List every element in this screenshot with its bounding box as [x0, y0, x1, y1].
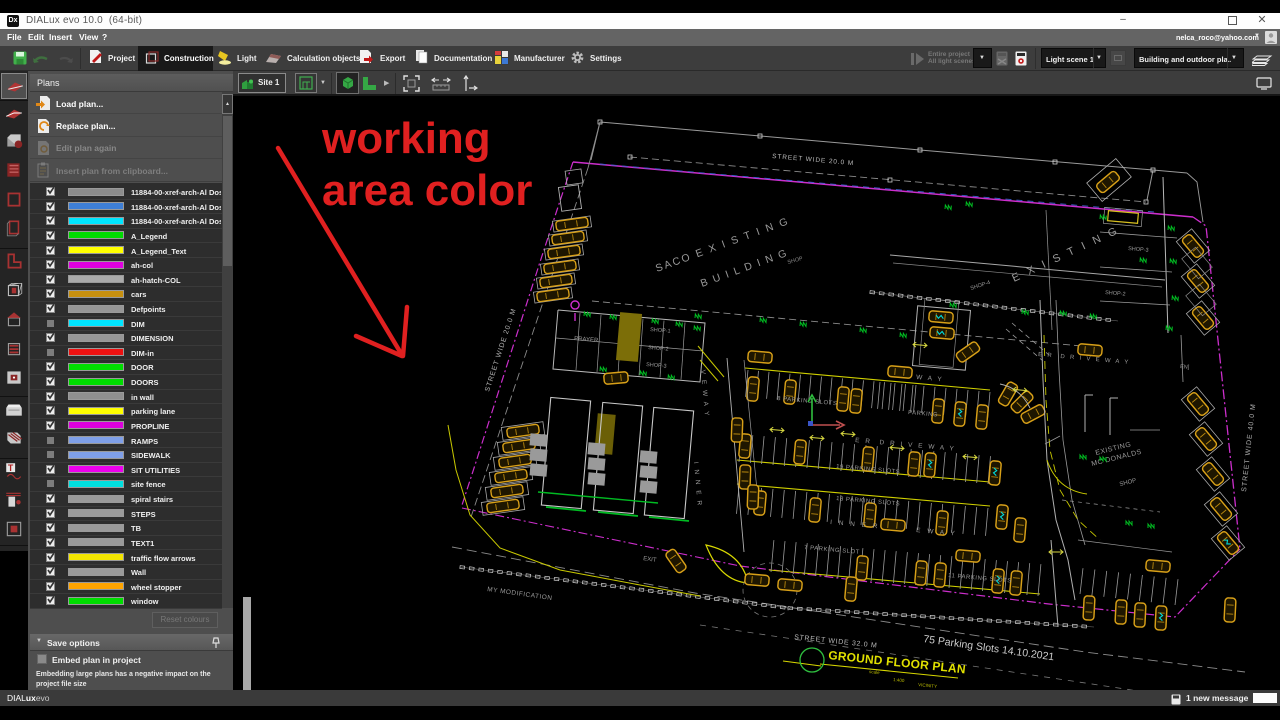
svg-text:SHOP-4: SHOP-4	[970, 280, 991, 292]
svg-text:MY MODIFICATION: MY MODIFICATION	[487, 586, 553, 602]
svg-text:EN]: EN]	[1180, 364, 1190, 371]
svg-text:SACO E X I S T I N G: SACO E X I S T I N G	[654, 215, 791, 275]
svg-text:STREET WIDE 40.0 M: STREET WIDE 40.0 M	[1241, 403, 1257, 492]
svg-text:V E W A Y: V E W A Y	[699, 370, 710, 418]
svg-text:W A Y: W A Y	[916, 374, 944, 383]
svg-text:VICINITY: VICINITY	[918, 682, 937, 689]
svg-text:1:400: 1:400	[893, 677, 905, 683]
svg-text:8 PARKING SLOTS: 8 PARKING SLOTS	[777, 396, 838, 407]
svg-text:E X I S T I N G: E X I S T I N G	[1010, 224, 1121, 284]
svg-text:area color: area color	[322, 166, 532, 215]
svg-text:SHOP-3: SHOP-3	[1128, 246, 1149, 254]
svg-text:E W A Y: E W A Y	[916, 527, 958, 538]
svg-text:SHOP-3: SHOP-3	[646, 362, 667, 370]
svg-text:SHOP-1: SHOP-1	[650, 327, 671, 335]
svg-text:SHOP-2: SHOP-2	[648, 345, 669, 353]
svg-text:STREET WIDE 20.0 M: STREET WIDE 20.0 M	[772, 153, 854, 167]
svg-text:working: working	[321, 114, 491, 163]
svg-text:PARKING: PARKING	[908, 410, 938, 419]
svg-text:T: T	[8, 463, 14, 473]
svg-text:SHOP: SHOP	[1119, 478, 1137, 488]
svg-text:STREET WIDE 20.0 M: STREET WIDE 20.0 M	[484, 307, 518, 392]
svg-text:7 PARKING SLOT: 7 PARKING SLOT	[804, 545, 860, 556]
svg-text:SHOP: SHOP	[787, 256, 804, 266]
svg-text:scale: scale	[869, 669, 880, 675]
svg-text:STREET WIDE 32.0 M: STREET WIDE 32.0 M	[794, 634, 878, 650]
svg-text:I N N E R: I N N E R	[692, 462, 703, 508]
svg-text:SHOP-2: SHOP-2	[1105, 290, 1126, 298]
svg-text:EXIT: EXIT	[643, 556, 657, 564]
